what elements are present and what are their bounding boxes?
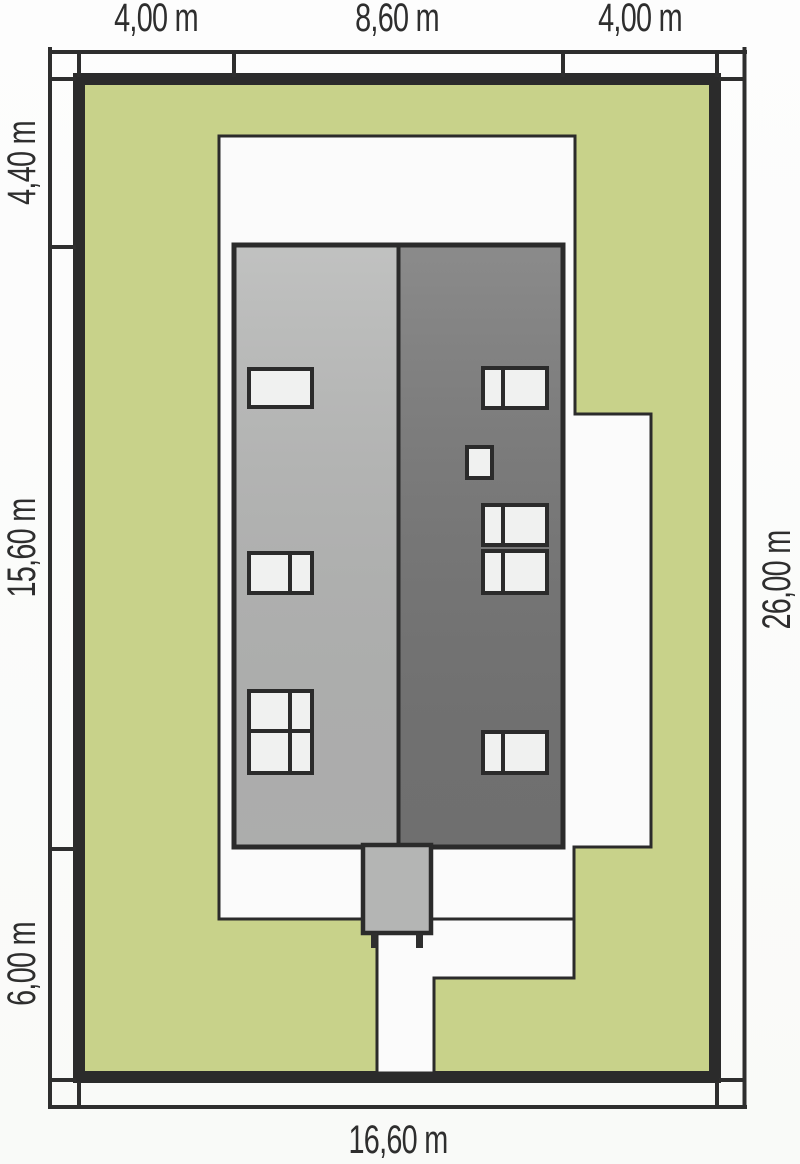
dimension-tick bbox=[77, 1082, 81, 1107]
dimension-tick bbox=[51, 77, 76, 81]
dimension-label-right: 26,00 m bbox=[757, 530, 797, 629]
site-plan-drawing bbox=[0, 0, 800, 1164]
roof-window bbox=[483, 551, 547, 593]
porch-post-left bbox=[371, 933, 377, 948]
dimension-tick bbox=[77, 52, 81, 77]
dimension-tick bbox=[715, 52, 719, 77]
roof-window bbox=[249, 553, 312, 593]
roof-window bbox=[483, 368, 547, 408]
dimension-label-top-left: 4,00 m bbox=[114, 0, 198, 38]
dimension-tick bbox=[715, 1082, 719, 1107]
dimension-tick bbox=[719, 1078, 744, 1082]
dimension-line-right bbox=[743, 47, 747, 1109]
dimension-label-bottom: 16,60 m bbox=[348, 1120, 447, 1160]
roof-skylight bbox=[467, 447, 492, 478]
dimension-line-bottom bbox=[48, 1105, 747, 1109]
dimension-tick bbox=[232, 52, 236, 77]
dimension-label-top-right: 4,00 m bbox=[598, 0, 682, 38]
entry-porch bbox=[363, 845, 431, 933]
roof-window bbox=[249, 369, 312, 407]
dimension-line-left bbox=[48, 47, 52, 1109]
roof-window bbox=[483, 732, 547, 773]
dimension-line-top bbox=[48, 50, 747, 54]
dimension-tick bbox=[561, 52, 565, 77]
site-plan-page: 4,00 m 8,60 m 4,00 m 4,40 m 15,60 m 6,00… bbox=[0, 0, 800, 1164]
roof-window bbox=[483, 505, 547, 545]
dimension-tick bbox=[51, 245, 76, 249]
dimension-label-left-upper: 4,40 m bbox=[2, 121, 42, 205]
dimension-label-left-lower: 6,00 m bbox=[2, 922, 42, 1006]
dimension-tick bbox=[719, 77, 744, 81]
dimension-label-left-middle: 15,60 m bbox=[2, 498, 42, 597]
dimension-tick bbox=[51, 1078, 76, 1082]
porch-post-right bbox=[416, 933, 423, 948]
dimension-label-top-center: 8,60 m bbox=[355, 0, 439, 38]
dimension-tick bbox=[51, 847, 76, 851]
